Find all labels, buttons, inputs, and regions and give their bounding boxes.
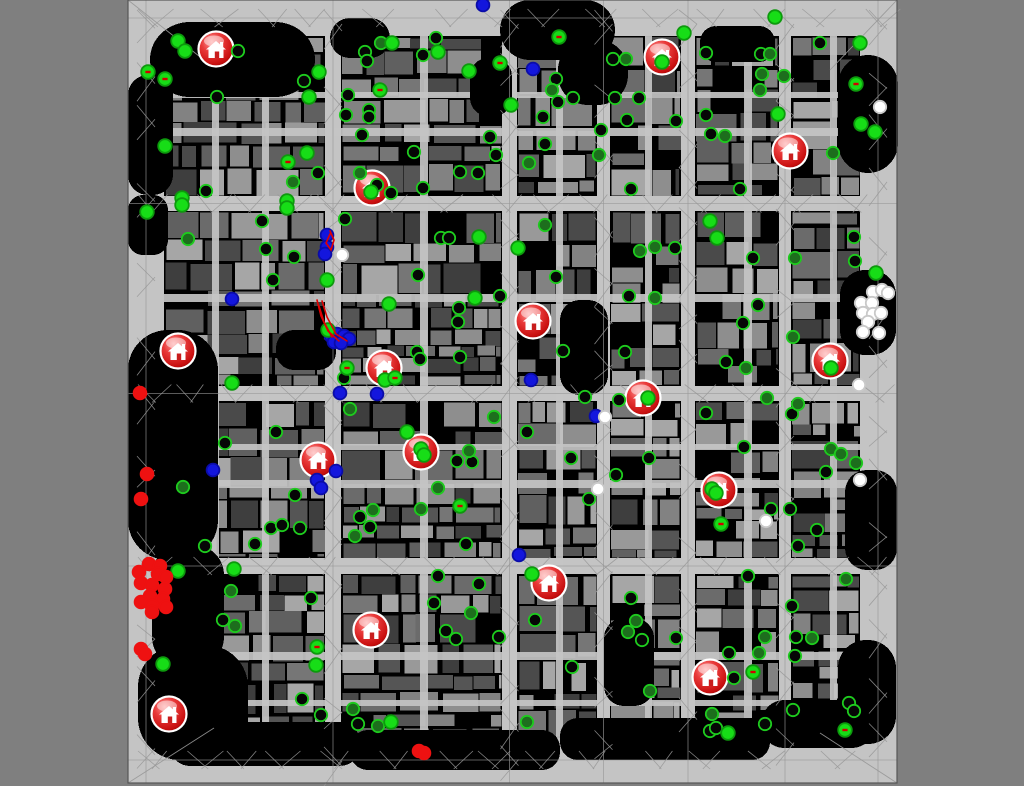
- civilian-dot-injured[interactable]: [840, 573, 852, 585]
- civilian-dot-healthy[interactable]: [175, 198, 189, 212]
- civilian-dot-critical[interactable]: [811, 524, 823, 536]
- civilian-dot-critical[interactable]: [443, 232, 455, 244]
- police-agent-dot[interactable]: [330, 465, 343, 478]
- civilian-dot-critical[interactable]: [669, 242, 681, 254]
- civilian-dot-injured[interactable]: [622, 626, 634, 638]
- civilian-dot-critical[interactable]: [473, 578, 485, 590]
- injury-tick: [853, 83, 858, 85]
- civilian-dot-injured[interactable]: [344, 403, 356, 415]
- civilian-dot-critical[interactable]: [289, 489, 301, 501]
- civilian-dot-critical[interactable]: [460, 538, 472, 550]
- civilian-dot-injured[interactable]: [546, 84, 558, 96]
- police-agent-dot[interactable]: [477, 0, 490, 11]
- fire-brigade-dot[interactable]: [418, 747, 431, 760]
- civilian-dot-critical[interactable]: [566, 661, 578, 673]
- civilian-dot-critical[interactable]: [720, 356, 732, 368]
- civilian-dot-healthy[interactable]: [225, 376, 239, 390]
- ambulance-agent-dot[interactable]: [874, 101, 886, 113]
- civilian-dot-injured[interactable]: [539, 219, 551, 231]
- injury-tick: [377, 89, 382, 91]
- civilian-dot-critical[interactable]: [623, 290, 635, 302]
- refuge-icon[interactable]: [354, 613, 389, 648]
- ambulance-agent-dot[interactable]: [760, 515, 772, 527]
- civilian-dot-healthy[interactable]: [868, 125, 882, 139]
- civilian-dot-critical[interactable]: [789, 650, 801, 662]
- fire-brigade-dot[interactable]: [160, 601, 173, 614]
- civilian-dot-injured[interactable]: [827, 147, 839, 159]
- injury-tick: [497, 62, 502, 64]
- police-agent-dot[interactable]: [371, 388, 384, 401]
- injury-tick: [556, 36, 561, 38]
- civilian-dot-healthy[interactable]: [373, 83, 387, 97]
- civilian-dot-healthy[interactable]: [677, 26, 691, 40]
- civilian-dot-healthy[interactable]: [312, 65, 326, 79]
- civilian-dot-critical[interactable]: [700, 407, 712, 419]
- civilian-dot-critical[interactable]: [625, 592, 637, 604]
- civilian-dot-critical[interactable]: [529, 614, 541, 626]
- civilian-dot-critical[interactable]: [786, 600, 798, 612]
- civilian-dot-healthy[interactable]: [710, 231, 724, 245]
- civilian-dot-critical[interactable]: [700, 47, 712, 59]
- civilian-dot-critical[interactable]: [361, 55, 373, 67]
- civilian-dot-critical[interactable]: [550, 271, 562, 283]
- police-agent-dot[interactable]: [525, 374, 538, 387]
- civilian-dot-critical[interactable]: [453, 302, 465, 314]
- civilian-dot-healthy[interactable]: [854, 117, 868, 131]
- civilian-dot-healthy[interactable]: [493, 56, 507, 70]
- civilian-dot-injured[interactable]: [620, 53, 632, 65]
- civilian-dot-critical[interactable]: [787, 704, 799, 716]
- civilian-dot-injured[interactable]: [740, 362, 752, 374]
- ambulance-agent-dot[interactable]: [853, 379, 865, 391]
- civilian-dot-critical[interactable]: [705, 128, 717, 140]
- refuge-icon[interactable]: [773, 134, 808, 169]
- civilian-dot-critical[interactable]: [270, 426, 282, 438]
- civilian-dot-injured[interactable]: [354, 167, 366, 179]
- civilian-dot-healthy[interactable]: [462, 64, 476, 78]
- civilian-dot-healthy[interactable]: [388, 371, 402, 385]
- civilian-dot-healthy[interactable]: [302, 90, 316, 104]
- civilian-dot-critical[interactable]: [294, 522, 306, 534]
- refuge-icon[interactable]: [161, 334, 196, 369]
- civilian-dot-critical[interactable]: [288, 251, 300, 263]
- civilian-dot-critical[interactable]: [557, 345, 569, 357]
- civilian-dot-healthy[interactable]: [655, 55, 669, 69]
- civilian-dot-critical[interactable]: [276, 519, 288, 531]
- civilian-dot-critical[interactable]: [352, 718, 364, 730]
- civilian-dot-healthy[interactable]: [838, 723, 852, 737]
- civilian-dot-injured[interactable]: [778, 70, 790, 82]
- civilian-dot-critical[interactable]: [484, 131, 496, 143]
- civilian-dot-critical[interactable]: [296, 693, 308, 705]
- civilian-dot-critical[interactable]: [539, 138, 551, 150]
- injury-tick: [145, 71, 150, 73]
- civilian-dot-critical[interactable]: [552, 96, 564, 108]
- civilian-dot-injured[interactable]: [754, 84, 766, 96]
- civilian-dot-critical[interactable]: [723, 647, 735, 659]
- simulation-viewer-window: [0, 0, 1024, 786]
- civilian-dot-injured[interactable]: [521, 716, 533, 728]
- civilian-dot-critical[interactable]: [579, 391, 591, 403]
- civilian-dot-injured[interactable]: [523, 157, 535, 169]
- civilian-dot-healthy[interactable]: [417, 448, 431, 462]
- injury-tick: [344, 367, 349, 369]
- civilian-dot-injured[interactable]: [634, 245, 646, 257]
- civilian-dot-critical[interactable]: [232, 45, 244, 57]
- injury-tick: [718, 523, 723, 525]
- civilian-dot-healthy[interactable]: [340, 361, 354, 375]
- civilian-dot-critical[interactable]: [700, 109, 712, 121]
- civilian-dot-healthy[interactable]: [869, 266, 883, 280]
- civilian-dot-critical[interactable]: [493, 631, 505, 643]
- ambulance-agent-dot[interactable]: [854, 474, 866, 486]
- civilian-dot-critical[interactable]: [450, 633, 462, 645]
- civilian-dot-healthy[interactable]: [364, 185, 378, 199]
- civilian-dot-injured[interactable]: [347, 703, 359, 715]
- civilian-dot-healthy[interactable]: [280, 201, 294, 215]
- civilian-dot-critical[interactable]: [494, 290, 506, 302]
- civilian-dot-healthy[interactable]: [453, 499, 467, 513]
- civilian-dot-injured[interactable]: [465, 607, 477, 619]
- civilian-dot-critical[interactable]: [567, 92, 579, 104]
- civilian-dot-healthy[interactable]: [158, 139, 172, 153]
- civilian-dot-injured[interactable]: [367, 504, 379, 516]
- civilian-dot-injured[interactable]: [177, 481, 189, 493]
- civilian-dot-healthy[interactable]: [703, 214, 717, 228]
- civilian-dot-healthy[interactable]: [309, 658, 323, 672]
- civilian-dot-critical[interactable]: [784, 503, 796, 515]
- civilian-dot-critical[interactable]: [412, 269, 424, 281]
- civilian-dot-healthy[interactable]: [511, 241, 525, 255]
- civilian-dot-injured[interactable]: [850, 457, 862, 469]
- civilian-dot-injured[interactable]: [792, 398, 804, 410]
- civilian-dot-critical[interactable]: [219, 437, 231, 449]
- civilian-dot-critical[interactable]: [633, 92, 645, 104]
- civilian-dot-injured[interactable]: [225, 585, 237, 597]
- civilian-dot-injured[interactable]: [649, 241, 661, 253]
- civilian-dot-healthy[interactable]: [472, 230, 486, 244]
- refuge-icon[interactable]: [693, 660, 728, 695]
- civilian-dot-healthy[interactable]: [552, 30, 566, 44]
- civilian-dot-critical[interactable]: [728, 672, 740, 684]
- civilian-dot-critical[interactable]: [342, 89, 354, 101]
- civilian-dot-critical[interactable]: [738, 441, 750, 453]
- ambulance-agent-dot[interactable]: [857, 326, 869, 338]
- civilian-dot-critical[interactable]: [430, 32, 442, 44]
- fire-brigade-dot[interactable]: [139, 648, 152, 661]
- civilian-dot-critical[interactable]: [610, 469, 622, 481]
- police-agent-dot[interactable]: [315, 482, 328, 495]
- civilian-dot-healthy[interactable]: [768, 10, 782, 24]
- civilian-dot-critical[interactable]: [814, 37, 826, 49]
- civilian-dot-critical[interactable]: [385, 187, 397, 199]
- civilian-dot-injured[interactable]: [488, 411, 500, 423]
- civilian-dot-injured[interactable]: [630, 615, 642, 627]
- ambulance-agent-dot[interactable]: [599, 411, 611, 423]
- civilian-dot-critical[interactable]: [595, 124, 607, 136]
- injury-tick: [392, 377, 397, 379]
- civilian-dot-healthy[interactable]: [281, 155, 295, 169]
- civilian-dot-critical[interactable]: [417, 182, 429, 194]
- civilian-dot-critical[interactable]: [305, 592, 317, 604]
- civilian-dot-injured[interactable]: [593, 149, 605, 161]
- civilian-dot-injured[interactable]: [432, 482, 444, 494]
- refuge-icon[interactable]: [199, 32, 234, 67]
- civilian-dot-critical[interactable]: [765, 503, 777, 515]
- civilian-dot-critical[interactable]: [451, 455, 463, 467]
- civilian-dot-critical[interactable]: [565, 452, 577, 464]
- civilian-dot-critical[interactable]: [747, 252, 759, 264]
- ambulance-agent-dot[interactable]: [592, 483, 604, 495]
- civilian-dot-critical[interactable]: [200, 185, 212, 197]
- injury-tick: [285, 161, 290, 163]
- civilian-dot-critical[interactable]: [267, 274, 279, 286]
- civilian-dot-critical[interactable]: [312, 167, 324, 179]
- civilian-dot-critical[interactable]: [670, 115, 682, 127]
- civilian-dot-critical[interactable]: [199, 540, 211, 552]
- civilian-dot-critical[interactable]: [621, 114, 633, 126]
- civilian-dot-healthy[interactable]: [158, 72, 172, 86]
- civilian-dot-critical[interactable]: [613, 394, 625, 406]
- civilian-dot-critical[interactable]: [414, 353, 426, 365]
- civilian-dot-healthy[interactable]: [382, 297, 396, 311]
- civilian-dot-injured[interactable]: [835, 448, 847, 460]
- civilian-dot-injured[interactable]: [463, 445, 475, 457]
- civilian-dot-critical[interactable]: [339, 213, 351, 225]
- civilian-dot-critical[interactable]: [490, 149, 502, 161]
- civilian-dot-injured[interactable]: [789, 252, 801, 264]
- fire-brigade-dot[interactable]: [160, 571, 173, 584]
- civilian-dot-critical[interactable]: [315, 709, 327, 721]
- civilian-dot-injured[interactable]: [764, 48, 776, 60]
- civilian-dot-critical[interactable]: [363, 111, 375, 123]
- civilian-dot-critical[interactable]: [759, 718, 771, 730]
- civilian-dot-healthy[interactable]: [384, 715, 398, 729]
- injury-tick: [457, 505, 462, 507]
- injury-tick: [162, 78, 167, 80]
- civilian-dot-healthy[interactable]: [714, 517, 728, 531]
- civilian-dot-healthy[interactable]: [709, 486, 723, 500]
- civilian-dot-healthy[interactable]: [300, 146, 314, 160]
- civilian-dot-healthy[interactable]: [385, 36, 399, 50]
- ambulance-agent-dot[interactable]: [336, 249, 348, 261]
- civilian-dot-critical[interactable]: [752, 299, 764, 311]
- civilian-dot-injured[interactable]: [372, 720, 384, 732]
- police-agent-dot[interactable]: [226, 293, 239, 306]
- civilian-dot-healthy[interactable]: [156, 657, 170, 671]
- police-agent-dot[interactable]: [334, 387, 347, 400]
- civilian-dot-injured[interactable]: [415, 503, 427, 515]
- civilian-dot-healthy[interactable]: [227, 562, 241, 576]
- civilian-dot-critical[interactable]: [625, 183, 637, 195]
- police-agent-dot[interactable]: [527, 63, 540, 76]
- civilian-dot-critical[interactable]: [256, 215, 268, 227]
- civilian-dot-critical[interactable]: [249, 538, 261, 550]
- map-canvas[interactable]: [0, 0, 1024, 786]
- ambulance-agent-dot[interactable]: [875, 307, 887, 319]
- civilian-dot-critical[interactable]: [260, 243, 272, 255]
- civilian-dot-critical[interactable]: [452, 316, 464, 328]
- civilian-dot-healthy[interactable]: [140, 205, 154, 219]
- civilian-dot-critical[interactable]: [670, 632, 682, 644]
- civilian-dot-critical[interactable]: [340, 109, 352, 121]
- civilian-dot-healthy[interactable]: [721, 726, 735, 740]
- fire-brigade-dot[interactable]: [134, 387, 147, 400]
- civilian-dot-critical[interactable]: [848, 705, 860, 717]
- civilian-dot-critical[interactable]: [217, 614, 229, 626]
- civilian-dot-critical[interactable]: [820, 466, 832, 478]
- civilian-dot-healthy[interactable]: [853, 36, 867, 50]
- injury-tick: [314, 646, 319, 648]
- civilian-dot-critical[interactable]: [609, 92, 621, 104]
- civilian-dot-critical[interactable]: [432, 570, 444, 582]
- civilian-dot-critical[interactable]: [619, 346, 631, 358]
- civilian-dot-critical[interactable]: [472, 167, 484, 179]
- civilian-dot-healthy[interactable]: [525, 567, 539, 581]
- civilian-dot-critical[interactable]: [521, 426, 533, 438]
- civilian-dot-critical[interactable]: [792, 540, 804, 552]
- civilian-dot-critical[interactable]: [298, 75, 310, 87]
- refuge-icon[interactable]: [516, 304, 551, 339]
- civilian-dot-critical[interactable]: [849, 255, 861, 267]
- civilian-dot-critical[interactable]: [454, 166, 466, 178]
- civilian-dot-critical[interactable]: [417, 49, 429, 61]
- civilian-dot-healthy[interactable]: [824, 361, 838, 375]
- civilian-dot-injured[interactable]: [719, 130, 731, 142]
- civilian-dot-healthy[interactable]: [141, 65, 155, 79]
- civilian-dot-injured[interactable]: [349, 530, 361, 542]
- civilian-dot-injured[interactable]: [756, 68, 768, 80]
- civilian-dot-critical[interactable]: [848, 231, 860, 243]
- ambulance-agent-dot[interactable]: [873, 327, 885, 339]
- civilian-dot-healthy[interactable]: [431, 45, 445, 59]
- civilian-dot-healthy[interactable]: [310, 640, 324, 654]
- civilian-dot-critical[interactable]: [354, 511, 366, 523]
- injury-tick: [842, 729, 847, 731]
- civilian-dot-injured[interactable]: [759, 631, 771, 643]
- civilian-dot-injured[interactable]: [287, 176, 299, 188]
- civilian-dot-critical[interactable]: [607, 53, 619, 65]
- civilian-dot-healthy[interactable]: [746, 665, 760, 679]
- civilian-dot-injured[interactable]: [649, 292, 661, 304]
- civilian-dot-healthy[interactable]: [178, 44, 192, 58]
- civilian-dot-critical[interactable]: [537, 111, 549, 123]
- injury-tick: [750, 671, 755, 673]
- civilian-dot-healthy[interactable]: [468, 291, 482, 305]
- civilian-dot-healthy[interactable]: [771, 107, 785, 121]
- civilian-dot-injured[interactable]: [753, 647, 765, 659]
- civilian-dot-healthy[interactable]: [849, 77, 863, 91]
- fire-brigade-dot[interactable]: [146, 606, 159, 619]
- civilian-dot-injured[interactable]: [229, 620, 241, 632]
- ambulance-agent-dot[interactable]: [882, 287, 894, 299]
- civilian-dot-injured[interactable]: [182, 233, 194, 245]
- civilian-dot-healthy[interactable]: [320, 273, 334, 287]
- police-agent-dot[interactable]: [513, 549, 526, 562]
- police-agent-dot[interactable]: [207, 464, 220, 477]
- civilian-dot-critical[interactable]: [408, 146, 420, 158]
- civilian-dot-injured[interactable]: [761, 392, 773, 404]
- civilian-dot-critical[interactable]: [790, 631, 802, 643]
- civilian-dot-injured[interactable]: [706, 708, 718, 720]
- civilian-dot-healthy[interactable]: [400, 425, 414, 439]
- civilian-dot-critical[interactable]: [356, 129, 368, 141]
- civilian-dot-injured[interactable]: [787, 331, 799, 343]
- civilian-dot-critical[interactable]: [454, 351, 466, 363]
- civilian-dot-critical[interactable]: [734, 183, 746, 195]
- civilian-dot-critical[interactable]: [364, 521, 376, 533]
- civilian-dot-healthy[interactable]: [641, 391, 655, 405]
- civilian-dot-critical[interactable]: [583, 493, 595, 505]
- civilian-dot-injured[interactable]: [806, 632, 818, 644]
- fire-brigade-dot[interactable]: [141, 468, 154, 481]
- civilian-dot-healthy[interactable]: [171, 564, 185, 578]
- fire-brigade-dot[interactable]: [135, 493, 148, 506]
- civilian-dot-critical[interactable]: [211, 91, 223, 103]
- civilian-dot-critical[interactable]: [737, 317, 749, 329]
- civilian-dot-critical[interactable]: [636, 634, 648, 646]
- civilian-dot-injured[interactable]: [644, 685, 656, 697]
- police-agent-dot[interactable]: [319, 248, 332, 261]
- civilian-dot-critical[interactable]: [742, 570, 754, 582]
- civilian-dot-critical[interactable]: [643, 452, 655, 464]
- refuge-icon[interactable]: [152, 697, 187, 732]
- civilian-dot-healthy[interactable]: [504, 98, 518, 112]
- civilian-dot-critical[interactable]: [428, 597, 440, 609]
